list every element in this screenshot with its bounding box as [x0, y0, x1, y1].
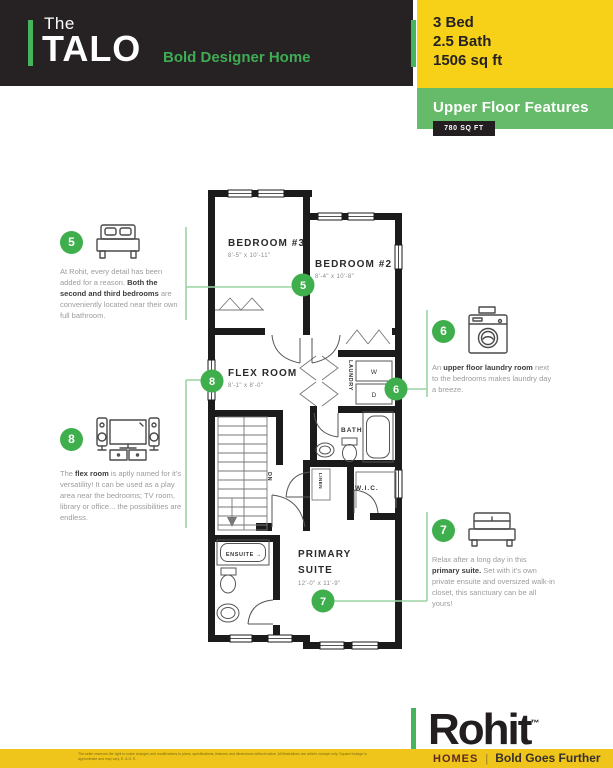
bed-icon — [468, 512, 516, 548]
bedroom3-door — [272, 335, 300, 363]
wic-door — [354, 490, 378, 513]
ensuite-sink — [217, 604, 239, 622]
flex-accordion-door — [300, 356, 316, 406]
wic-label: W.I.C. — [355, 485, 379, 492]
svg-text:7: 7 — [320, 596, 326, 608]
callout-text-8: The flex room is aptly named for it's ve… — [60, 468, 184, 523]
rohit-logo: Rohit™ — [428, 698, 539, 755]
stairs — [218, 417, 267, 530]
stairs-down-label: DN — [266, 472, 272, 481]
bedroom2-dims: 8'-4" x 10'-8" — [315, 274, 354, 280]
svg-text:8: 8 — [209, 376, 215, 388]
dryer-label: D — [372, 392, 377, 399]
homes-label: HOMES — [433, 753, 478, 765]
laundry-accordion-door — [322, 356, 338, 406]
callout-block-8: 8 The flex room is aptly na — [60, 416, 184, 523]
bed-icon — [96, 224, 140, 260]
connector-callout-6 — [408, 310, 428, 397]
callout-number-5: 5 — [60, 231, 83, 254]
bedroom3-label: BEDROOM #3 — [228, 238, 305, 249]
flyer-page: The TALO Bold Designer Home 3 Bed 2.5 Ba… — [0, 0, 613, 768]
connector-callout-8 — [186, 380, 201, 528]
trademark-symbol: ™ — [530, 718, 539, 728]
washing-machine-icon — [468, 306, 508, 356]
svg-text:6: 6 — [393, 384, 399, 396]
laundry-label: LAUNDRY — [347, 360, 353, 391]
bedroom3-closet-bifold — [219, 298, 263, 310]
callout-number-7: 7 — [432, 519, 455, 542]
footer-separator: | — [485, 753, 488, 765]
tv-speakers-icon — [96, 416, 160, 462]
callout-text-5: At Rohit, every detail has been added fo… — [60, 266, 184, 321]
callout-block-6: 6 An upper floor laundry room next to th… — [432, 306, 552, 395]
bath-door — [314, 413, 338, 437]
disclaimer-text: The seller reserves the right to make ch… — [78, 752, 380, 762]
linen-label: LINEN — [318, 473, 323, 489]
rohit-wordmark: Rohit — [428, 705, 530, 754]
bedroom3-dims: 8'-5" x 10'-11" — [228, 253, 270, 259]
bedroom2-label: BEDROOM #2 — [315, 259, 392, 270]
bedroom2-closet-bifold — [346, 330, 390, 344]
ensuite-label: ENSUITE → — [226, 552, 262, 558]
callout-block-5: 5 At Rohit, every detail has been added … — [60, 224, 184, 321]
primary-suite-dims: 12'-0" x 11'-9" — [298, 581, 340, 587]
stairs-down-arrow — [227, 517, 237, 527]
footer-tagline: Bold Goes Further — [495, 751, 600, 765]
callout-text-7: Relax after a long day in this primary s… — [432, 554, 556, 609]
callout-number-6: 6 — [432, 320, 455, 343]
callout-block-7: 7 Relax after a long day in this primary… — [432, 512, 556, 609]
primary-door — [272, 495, 305, 527]
primary-suite-label-1: PRIMARY — [298, 549, 351, 560]
primary-suite-label-2: SUITE — [298, 565, 333, 576]
bath-toilet — [342, 438, 357, 445]
flex-room-dims: 8'-1" x 8'-0" — [228, 383, 263, 389]
washer-label: W — [371, 369, 378, 376]
bath-sink — [316, 443, 334, 457]
bath-label: BATH — [341, 427, 363, 434]
ensuite-toilet — [221, 568, 236, 575]
ensuite-door — [248, 600, 273, 624]
footer-brand-line: HOMES | Bold Goes Further — [433, 751, 601, 765]
svg-text:5: 5 — [300, 280, 306, 292]
flex-room-label: FLEX ROOM — [228, 368, 297, 379]
callout-number-8: 8 — [60, 428, 83, 451]
callout-text-6: An upper floor laundry room next to the … — [432, 362, 552, 395]
